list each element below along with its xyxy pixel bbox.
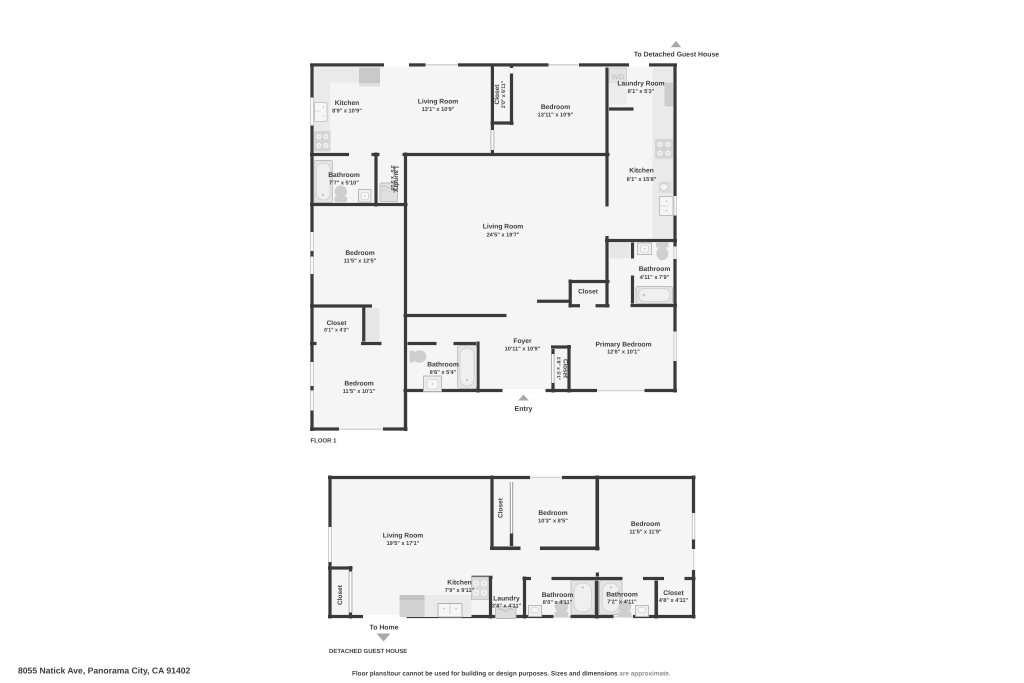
svg-text:Bathroom: Bathroom (542, 592, 574, 599)
svg-text:Laundry Room: Laundry Room (617, 81, 664, 88)
svg-text:DETACHED GUEST HOUSE: DETACHED GUEST HOUSE (329, 648, 407, 655)
svg-text:10'11" x 10'9": 10'11" x 10'9" (505, 347, 541, 353)
svg-text:Living Room: Living Room (483, 224, 524, 231)
svg-text:8'6" x 5'4": 8'6" x 5'4" (430, 370, 457, 376)
svg-text:Laundry: Laundry (493, 596, 520, 603)
svg-text:Foyer: Foyer (513, 338, 532, 345)
svg-text:Floor plans/tour cannot be use: Floor plans/tour cannot be used for buil… (352, 671, 671, 678)
svg-text:Kitchen: Kitchen (335, 100, 360, 107)
svg-text:Entry: Entry (515, 406, 533, 413)
svg-text:11'5" x 12'5": 11'5" x 12'5" (344, 259, 377, 265)
svg-text:Closet: Closet (337, 584, 344, 605)
svg-text:Bathroom: Bathroom (328, 172, 360, 179)
svg-text:24'5" x 19'7": 24'5" x 19'7" (487, 233, 520, 239)
svg-text:7'2" x 4'11": 7'2" x 4'11" (607, 600, 637, 606)
svg-text:Bedroom: Bedroom (631, 521, 660, 528)
svg-text:Closet: Closet (494, 84, 501, 105)
svg-text:Bedroom: Bedroom (541, 104, 570, 111)
svg-text:8'0" x 4'11": 8'0" x 4'11" (543, 600, 573, 606)
svg-text:19'5" x 17'1": 19'5" x 17'1" (387, 541, 420, 547)
svg-text:WD: WD (612, 73, 625, 82)
svg-text:4'8" x 4'11": 4'8" x 4'11" (659, 598, 689, 604)
svg-text:Closet: Closet (498, 497, 505, 518)
svg-text:Bedroom: Bedroom (344, 381, 373, 388)
svg-text:7'7" x 5'10": 7'7" x 5'10" (329, 181, 359, 187)
svg-text:Bathroom: Bathroom (427, 362, 459, 369)
svg-text:7'9" x 9'11": 7'9" x 9'11" (445, 588, 475, 594)
svg-text:Bathroom: Bathroom (606, 592, 638, 599)
svg-text:Living Room: Living Room (418, 99, 459, 106)
svg-text:13'11" x 10'9": 13'11" x 10'9" (538, 113, 574, 119)
svg-text:2'0" x 6'11": 2'0" x 6'11" (501, 80, 507, 108)
svg-text:Primary Bedroom: Primary Bedroom (595, 342, 651, 349)
svg-text:Bedroom: Bedroom (345, 250, 374, 257)
svg-text:8'1" x 5'3": 8'1" x 5'3" (628, 89, 655, 95)
svg-text:FLOOR 1: FLOOR 1 (311, 438, 338, 445)
svg-text:6'1" x 4'2": 6'1" x 4'2" (324, 328, 349, 334)
svg-text:11'5" x 10'1": 11'5" x 10'1" (343, 389, 376, 395)
svg-text:Bedroom: Bedroom (538, 510, 567, 517)
svg-text:11'5" x 11'9": 11'5" x 11'9" (629, 530, 662, 536)
svg-text:8'9" x 10'9": 8'9" x 10'9" (332, 109, 362, 115)
svg-text:13'1" x 10'9": 13'1" x 10'9" (422, 107, 455, 113)
svg-text:Living Room: Living Room (383, 533, 424, 540)
svg-text:10'3" x 8'5": 10'3" x 8'5" (538, 519, 568, 525)
svg-text:1'8" x 5'1": 1'8" x 5'1" (555, 357, 561, 381)
svg-text:Closet: Closet (663, 590, 684, 597)
svg-text:Closet: Closet (327, 320, 348, 327)
svg-text:Kitchen: Kitchen (629, 168, 654, 175)
svg-text:To Home: To Home (370, 625, 399, 632)
svg-text:4'11" x 7'9": 4'11" x 7'9" (640, 275, 670, 281)
svg-text:8'1" x 15'8": 8'1" x 15'8" (627, 177, 657, 183)
svg-text:Kitchen: Kitchen (447, 580, 472, 587)
svg-text:8055 Natick Ave, Panorama City: 8055 Natick Ave, Panorama City, CA 91402 (18, 666, 191, 676)
svg-text:To Detached Guest House: To Detached Guest House (634, 52, 719, 59)
svg-text:3'5" x 5'10": 3'5" x 5'10" (389, 165, 395, 193)
svg-text:12'8" x 10'1": 12'8" x 10'1" (607, 350, 640, 356)
svg-text:3'8" x 4'11": 3'8" x 4'11" (492, 604, 522, 610)
svg-text:Closet: Closet (562, 359, 569, 378)
svg-text:Closet: Closet (578, 289, 599, 296)
svg-text:Bathroom: Bathroom (639, 266, 671, 273)
